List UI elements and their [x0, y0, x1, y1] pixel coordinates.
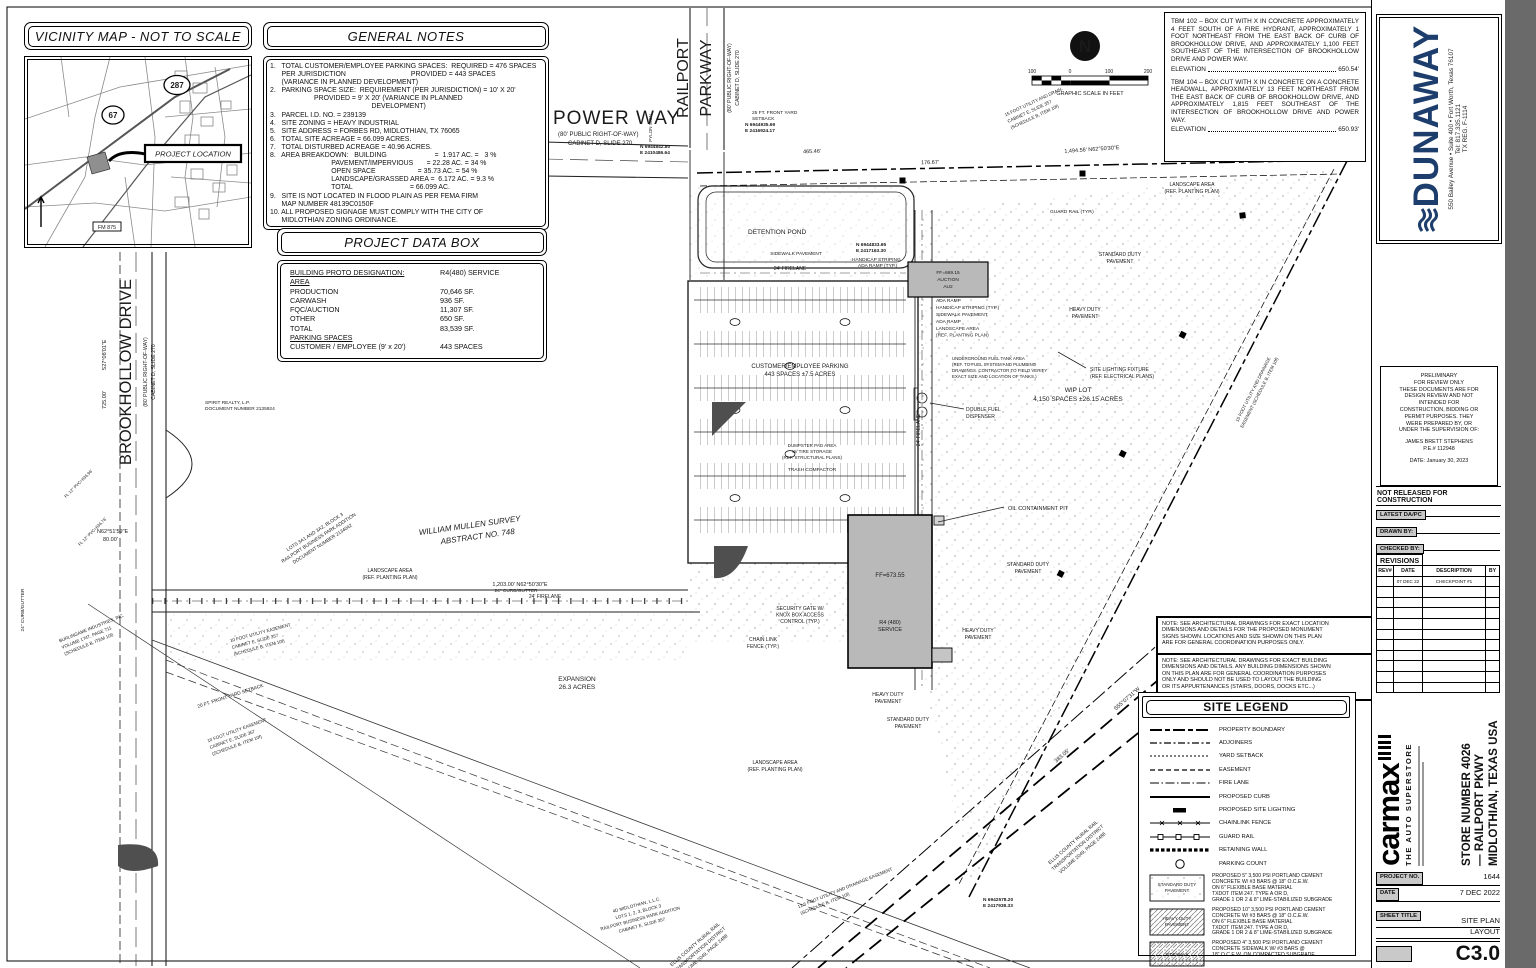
- svg-text:443 SPACES ±7.5 ACRES: 443 SPACES ±7.5 ACRES: [765, 372, 836, 378]
- svg-text:CUSTOMER/EMPLOYEE PARKING: CUSTOMER/EMPLOYEE PARKING: [751, 364, 848, 370]
- svg-text:24' FIRELANE: 24' FIRELANE: [916, 413, 922, 446]
- svg-text:EXPANSION: EXPANSION: [558, 676, 596, 683]
- arch-note-monument: NOTE: SEE ARCHITECTURAL DRAWINGS FOR EXA…: [1156, 616, 1380, 658]
- svg-text:ADA RAMP: ADA RAMP: [936, 298, 961, 304]
- svg-text:(80' PUBLIC RIGHT-OF-WAY): (80' PUBLIC RIGHT-OF-WAY): [727, 43, 733, 113]
- svg-text:100: 100: [1105, 69, 1114, 75]
- legend-proposed-curb: PROPOSED CURB: [1149, 790, 1347, 803]
- svg-text:GUARD RAIL (TYP.): GUARD RAIL (TYP.): [1050, 209, 1094, 215]
- legend-fire-lane: FIRE LANE: [1149, 777, 1347, 790]
- svg-text:(REF. PLANTING PLAN): (REF. PLANTING PLAN): [936, 333, 989, 339]
- carmax-block: carmax THE AUTO SUPERSTORE STORE NUMBER …: [1376, 694, 1500, 866]
- svg-text:100: 100: [1028, 69, 1037, 75]
- vicinity-map: 287 67 PROJECT LOCATION FM 875: [24, 56, 252, 248]
- latest-dapc-row: LATEST DA/PC: [1376, 503, 1500, 517]
- svg-text:DISPENSER: DISPENSER: [966, 414, 995, 420]
- svg-text:SERVICE: SERVICE: [878, 627, 902, 633]
- svg-text:725.00': 725.00': [102, 391, 108, 409]
- svg-text:CABINET D, SLIDE 270: CABINET D, SLIDE 270: [735, 50, 741, 106]
- svg-text:(REF. PLANTING PLAN): (REF. PLANTING PLAN): [1164, 189, 1219, 195]
- dunaway-wordmark: DUNAWAY: [1410, 25, 1444, 208]
- site-legend: SITE LEGEND PROPERTY BOUNDARY ADJOINERS …: [1138, 692, 1356, 956]
- svg-text:4,150 SPACES ±26.15 ACRES: 4,150 SPACES ±26.15 ACRES: [1033, 396, 1123, 403]
- svg-text:SIDEWALK PAVEMENT: SIDEWALK PAVEMENT: [936, 312, 988, 318]
- svg-text:PAVEMENT: PAVEMENT: [1072, 314, 1099, 320]
- svg-text:FENCE (TYP.): FENCE (TYP.): [747, 644, 779, 650]
- drawn-by-row: DRAWN BY:: [1376, 520, 1500, 534]
- svg-text:24' FIRELANE: 24' FIRELANE: [774, 266, 807, 272]
- svg-text:24' FIRELANE: 24' FIRELANE: [529, 594, 562, 600]
- legend-chainlink-fence: CHAINLINK FENCE: [1149, 817, 1347, 830]
- svg-text:N62°51'59"E: N62°51'59"E: [97, 529, 129, 535]
- svg-text:PAVEMENT: PAVEMENT: [1165, 922, 1190, 927]
- svg-text:N 6944935.69: N 6944935.69: [745, 122, 775, 128]
- svg-text:ADA RAMP (TYP.): ADA RAMP (TYP.): [858, 263, 898, 269]
- vicinity-map-title-text: VICINITY MAP - NOT TO SCALE: [35, 29, 241, 44]
- dunaway-wave-icon: [1414, 207, 1440, 233]
- legend-guard-rail: GUARD RAIL: [1149, 830, 1347, 843]
- legend-adjoiners: ADJOINERS: [1149, 736, 1347, 749]
- svg-text:BROOKHOLLOW DRIVE: BROOKHOLLOW DRIVE: [117, 279, 135, 465]
- svg-text:(REF. STRUCTURAL PLANS): (REF. STRUCTURAL PLANS): [782, 455, 843, 460]
- svg-text:SPIRIT REALTY, L.P.: SPIRIT REALTY, L.P.: [205, 400, 250, 406]
- svg-text:(REF. PLANTING PLAN): (REF. PLANTING PLAN): [362, 575, 417, 581]
- general-notes: 1. TOTAL CUSTOMER/EMPLOYEE PARKING SPACE…: [263, 56, 549, 230]
- dunaway-reg: TX REG. F-1114: [1462, 106, 1469, 153]
- svg-text:N: N: [1079, 37, 1091, 56]
- svg-text:(REF. PLANTING PLAN): (REF. PLANTING PLAN): [747, 767, 802, 773]
- project-data-title: PROJECT DATA BOX: [277, 228, 547, 256]
- svg-text:STANDARD DUTY: STANDARD DUTY: [887, 717, 930, 723]
- north-arrow-icon: N: [1070, 31, 1100, 61]
- svg-text:N 6944833.65: N 6944833.65: [856, 242, 886, 248]
- legend-heavy-duty: HEAVY DUTY PAVEMENT PROPOSED 10" 3,500 P…: [1149, 908, 1347, 938]
- carmax-logo: carmax THE AUTO SUPERSTORE: [1376, 694, 1424, 866]
- svg-text:POWER WAY: POWER WAY: [553, 108, 680, 129]
- page-gray-band: [1505, 0, 1536, 968]
- svg-text:E 2417938.33: E 2417938.33: [983, 903, 1013, 909]
- svg-text:PROJECT LOCATION: PROJECT LOCATION: [155, 150, 231, 159]
- site-legend-title: SITE LEGEND: [1142, 696, 1350, 718]
- svg-text:PAVEMENT: PAVEMENT: [1015, 569, 1042, 575]
- svg-text:CHAIN LINK: CHAIN LINK: [749, 637, 778, 643]
- svg-text:AUCTION: AUCTION: [937, 277, 959, 283]
- svg-text:KNOX BOX ACCESS: KNOX BOX ACCESS: [776, 613, 824, 619]
- svg-text:RAILPORT: RAILPORT: [675, 38, 692, 118]
- svg-text:LANDSCAPE AREA: LANDSCAPE AREA: [1169, 182, 1215, 188]
- svg-text:PAVEMENT: PAVEMENT: [895, 724, 922, 730]
- svg-text:HANDICAP STRIPING (TYP.): HANDICAP STRIPING (TYP.): [936, 305, 1000, 311]
- svg-text:80.00': 80.00': [103, 537, 118, 543]
- svg-text:465.46': 465.46': [803, 149, 821, 156]
- svg-text:PAVEMENT: PAVEMENT: [965, 635, 992, 641]
- svg-text:FF=673.55: FF=673.55: [875, 573, 905, 579]
- svg-text:PAVEMENT: PAVEMENT: [1165, 888, 1190, 893]
- dunaway-tel: Tel: 817.335.1121: [1455, 104, 1462, 154]
- svg-text:(REF. TO FUEL SYSTEM AND PLUMB: (REF. TO FUEL SYSTEM AND PLUMBING: [952, 362, 1037, 367]
- svg-text:SIDEWALK: SIDEWALK: [1165, 952, 1190, 957]
- legend-easement: EASEMENT: [1149, 763, 1347, 776]
- svg-text:ADA RAMP: ADA RAMP: [936, 319, 961, 325]
- svg-text:FL 12" PVC=636.96': FL 12" PVC=636.96': [63, 468, 93, 498]
- svg-text:TRANSPORTATION DISTRICT: TRANSPORTATION DISTRICT: [1051, 824, 1105, 872]
- revisions-table: REV# DATE DESCRIPTION BY 07 DEC 22CHECKP…: [1376, 565, 1500, 693]
- vicinity-map-drawing: 287 67 PROJECT LOCATION FM 875: [25, 57, 251, 247]
- svg-text:LANDSCAPE AREA: LANDSCAPE AREA: [367, 568, 413, 574]
- sheet-number-box: C3.0: [1376, 942, 1500, 966]
- general-notes-title: GENERAL NOTES: [263, 22, 549, 50]
- svg-text:GRAPHIC SCALE IN FEET: GRAPHIC SCALE IN FEET: [1056, 91, 1124, 97]
- legend-yard-setback: YARD SETBACK: [1149, 750, 1347, 763]
- svg-text:SETBACK: SETBACK: [752, 116, 775, 122]
- checked-by-row: CHECKED BY:: [1376, 537, 1500, 551]
- svg-text:AU2: AU2: [943, 284, 953, 290]
- svg-text:24" CURB/GUTTER: 24" CURB/GUTTER: [494, 588, 538, 594]
- legend-site-lighting: PROPOSED SITE LIGHTING: [1149, 803, 1347, 816]
- svg-text:HEAVY DUTY: HEAVY DUTY: [872, 692, 904, 698]
- svg-text:(80' PUBLIC RIGHT-OF-WAY): (80' PUBLIC RIGHT-OF-WAY): [143, 337, 149, 407]
- svg-text:CABINET D, SLIDE 270: CABINET D, SLIDE 270: [568, 141, 633, 147]
- svg-text:RAILPORT BUSINESS PARK ADDITIO: RAILPORT BUSINESS PARK ADDITION: [281, 512, 358, 565]
- svg-text:UNDERGROUND FUEL TANK AREA: UNDERGROUND FUEL TANK AREA: [952, 356, 1025, 361]
- general-notes-title-text: GENERAL NOTES: [348, 29, 465, 44]
- svg-text:0: 0: [1069, 69, 1072, 75]
- svg-text:12.5 FOOT UTILITY AND DRAINAGE: 12.5 FOOT UTILITY AND DRAINAGE EASEMENT: [797, 866, 893, 909]
- tbm-notes: TBM 102 – BOX CUT WITH X IN CONCRETE APP…: [1164, 12, 1366, 162]
- svg-text:PAVEMENT: PAVEMENT: [1107, 259, 1134, 265]
- svg-text:STANDARD DUTY: STANDARD DUTY: [1158, 882, 1197, 887]
- svg-text:26.3 ACRES: 26.3 ACRES: [559, 684, 596, 691]
- dunaway-logo-box: DUNAWAY 550 Bailey Avenue • Suite 400 • …: [1376, 14, 1502, 244]
- legend-standard-duty: STANDARD DUTY PAVEMENT PROPOSED 5" 3,500…: [1149, 874, 1347, 904]
- title-block-column: DUNAWAY 550 Bailey Avenue • Suite 400 • …: [1371, 0, 1506, 968]
- legend-property-boundary: PROPERTY BOUNDARY: [1149, 723, 1347, 736]
- dunaway-address: 550 Bailey Avenue • Suite 400 • Fort Wor…: [1448, 48, 1455, 209]
- svg-text:N 6944842.80: N 6944842.80: [640, 144, 670, 150]
- sheet-title-row: SHEET TITLE: [1376, 904, 1500, 916]
- svg-text:CONTROL (TYP.): CONTROL (TYP.): [780, 619, 820, 625]
- svg-text:EASEMENT (SCHEDULE B, ITEM 10f: EASEMENT (SCHEDULE B, ITEM 10f): [1239, 356, 1279, 429]
- svg-text:STANDARD DUTY: STANDARD DUTY: [1007, 562, 1050, 568]
- sheet: N 100 0 100 200 GRAPHIC SCALE IN FEET PO…: [0, 0, 1536, 968]
- legend-parking-count: PARKING COUNT: [1149, 857, 1347, 870]
- svg-text:E 2417163.30: E 2417163.30: [856, 248, 886, 254]
- svg-text:OIL CONTAINMENT PIT: OIL CONTAINMENT PIT: [1008, 506, 1069, 512]
- svg-text:W/ TIRE STORAGE: W/ TIRE STORAGE: [792, 449, 832, 454]
- carmax-dashes-icon: [1378, 735, 1391, 760]
- svg-text:25 FT. FRONT YARD: 25 FT. FRONT YARD: [752, 110, 798, 116]
- svg-text:E 2410486.64: E 2410486.64: [640, 150, 670, 156]
- svg-text:DUMPSTER PAD AREA: DUMPSTER PAD AREA: [788, 443, 837, 448]
- svg-text:STANDARD DUTY: STANDARD DUTY: [1099, 252, 1142, 258]
- svg-text:287: 287: [170, 81, 184, 90]
- preliminary-box: PRELIMINARYFOR REVIEW ONLY THESE DOCUMEN…: [1380, 366, 1498, 486]
- svg-text:PAVEMENT: PAVEMENT: [875, 699, 902, 705]
- vicinity-map-title: VICINITY MAP - NOT TO SCALE: [24, 22, 252, 50]
- svg-text:R4 (480): R4 (480): [879, 620, 901, 626]
- svg-text:HEAVY DUTY: HEAVY DUTY: [1069, 307, 1101, 313]
- svg-text:FM 875: FM 875: [98, 225, 116, 231]
- svg-text:LANDSCAPE AREA: LANDSCAPE AREA: [936, 326, 980, 332]
- svg-text:HANDICAP STRIPING: HANDICAP STRIPING: [852, 257, 901, 263]
- svg-text:176.67': 176.67': [921, 160, 939, 167]
- svg-text:15 FOOT UTILITY AND DRAINAGE: 15 FOOT UTILITY AND DRAINAGE: [1235, 356, 1272, 422]
- svg-text:DETENTION POND: DETENTION POND: [748, 229, 806, 236]
- sheet-title-line2: LAYOUT: [1376, 927, 1500, 939]
- svg-text:TRASH COMPACTOR: TRASH COMPACTOR: [788, 467, 837, 473]
- svg-text:WIP LOT: WIP LOT: [1065, 387, 1092, 394]
- svg-text:SITE LIGHTING FIXTURE: SITE LIGHTING FIXTURE: [1090, 367, 1150, 373]
- svg-text:HEAVY DUTY: HEAVY DUTY: [962, 628, 994, 634]
- svg-text:CABINET D, SLIDE 270: CABINET D, SLIDE 270: [151, 344, 157, 400]
- project-data-title-text: PROJECT DATA BOX: [344, 235, 480, 250]
- svg-text:(80' PUBLIC RIGHT-OF-WAY): (80' PUBLIC RIGHT-OF-WAY): [558, 132, 638, 138]
- legend-retaining-wall: RETAINING WALL: [1149, 844, 1347, 857]
- svg-text:FF=669.15: FF=669.15: [936, 270, 960, 276]
- svg-text:DOCUMENT NUMBER 2135924: DOCUMENT NUMBER 2135924: [205, 406, 275, 412]
- svg-text:67: 67: [109, 111, 118, 120]
- legend-sidewalk: SIDEWALK PROPOSED 4" 3,500 PSI PORTLAND …: [1149, 941, 1347, 967]
- project-data-box: BUILDING PROTO DESIGNATION:R4(480) SERVI…: [277, 260, 547, 362]
- svg-text:1,494.56' N62°50'30"E: 1,494.56' N62°50'30"E: [1064, 145, 1120, 155]
- svg-text:E 2416924.17: E 2416924.17: [745, 128, 775, 134]
- svg-text:15 FOOT UTILITY AND DRAIN.: 15 FOOT UTILITY AND DRAIN.: [1004, 86, 1064, 117]
- carmax-store-address: STORE NUMBER 4026 — RAILPORT PKWY MIDLOT…: [1460, 694, 1501, 866]
- svg-text:LANDSCAPE AREA: LANDSCAPE AREA: [752, 760, 798, 766]
- svg-text:N 6942578.20: N 6942578.20: [983, 897, 1013, 903]
- date-row: DATE 7 DEC 2022: [1376, 888, 1500, 902]
- svg-text:PYLON SIGN: PYLON SIGN: [648, 114, 653, 142]
- svg-text:1,203.00' N62°50'30"E: 1,203.00' N62°50'30"E: [492, 582, 548, 588]
- svg-text:(REF. ELECTRICAL PLANS): (REF. ELECTRICAL PLANS): [1090, 374, 1154, 380]
- svg-text:DRAWINGS. CONTRACTOR TO FIELD: DRAWINGS. CONTRACTOR TO FIELD VERIFY: [952, 368, 1047, 373]
- svg-text:BURLINGAME INDUSTRIES, INC.: BURLINGAME INDUSTRIES, INC.: [58, 613, 125, 644]
- south-drive-lines: [152, 590, 700, 612]
- svg-text:PARKWAY: PARKWAY: [698, 39, 715, 116]
- svg-text:24" CURB/GUTTER: 24" CURB/GUTTER: [20, 588, 26, 632]
- svg-text:DOUBLE FUEL: DOUBLE FUEL: [966, 407, 1001, 413]
- svg-text:EXACT SIZE AND LOCATION OF TAN: EXACT SIZE AND LOCATION OF TANKS.): [952, 374, 1037, 379]
- svg-text:200: 200: [1144, 69, 1153, 75]
- svg-text:HEAVY DUTY: HEAVY DUTY: [1163, 916, 1192, 921]
- svg-text:S27°08'01"E: S27°08'01"E: [102, 339, 108, 370]
- svg-text:SECURITY GATE W/: SECURITY GATE W/: [776, 606, 824, 612]
- project-no-row: PROJECT NO. 1644: [1376, 872, 1500, 886]
- svg-text:SIDEWALK PAVEMENT: SIDEWALK PAVEMENT: [770, 251, 822, 257]
